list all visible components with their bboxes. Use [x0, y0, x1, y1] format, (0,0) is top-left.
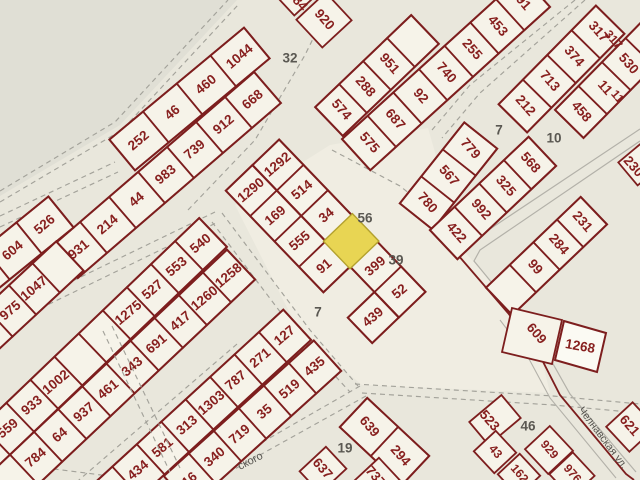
svg-text:39: 39: [388, 253, 403, 268]
svg-text:56: 56: [357, 211, 373, 226]
svg-text:7: 7: [314, 305, 322, 320]
svg-text:46: 46: [520, 419, 536, 434]
svg-text:19: 19: [337, 441, 352, 456]
svg-text:32: 32: [282, 51, 297, 66]
svg-text:7: 7: [495, 123, 503, 138]
svg-text:10: 10: [546, 131, 561, 146]
